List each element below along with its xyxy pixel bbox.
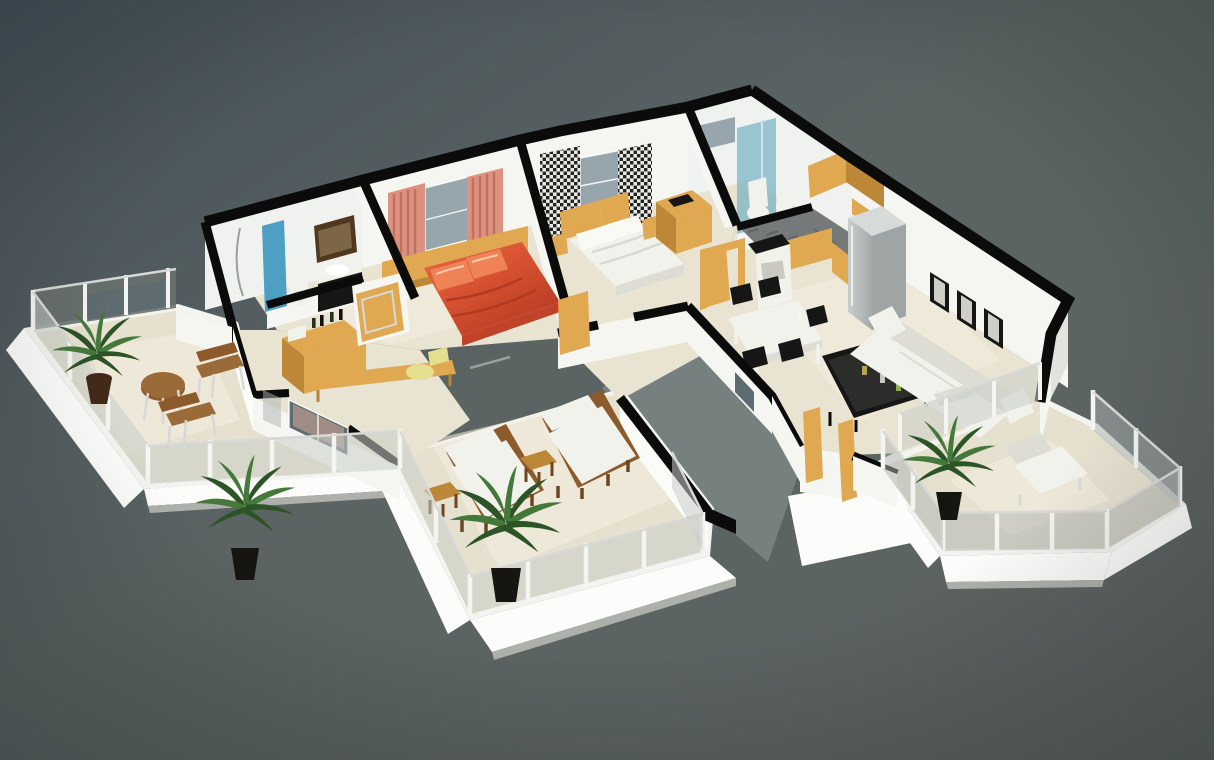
vignette: [0, 0, 1214, 760]
floorplan-render: en-suite bathroom master bedroom: [0, 0, 1214, 760]
floorplan-svg: en-suite bathroom master bedroom: [0, 0, 1214, 760]
